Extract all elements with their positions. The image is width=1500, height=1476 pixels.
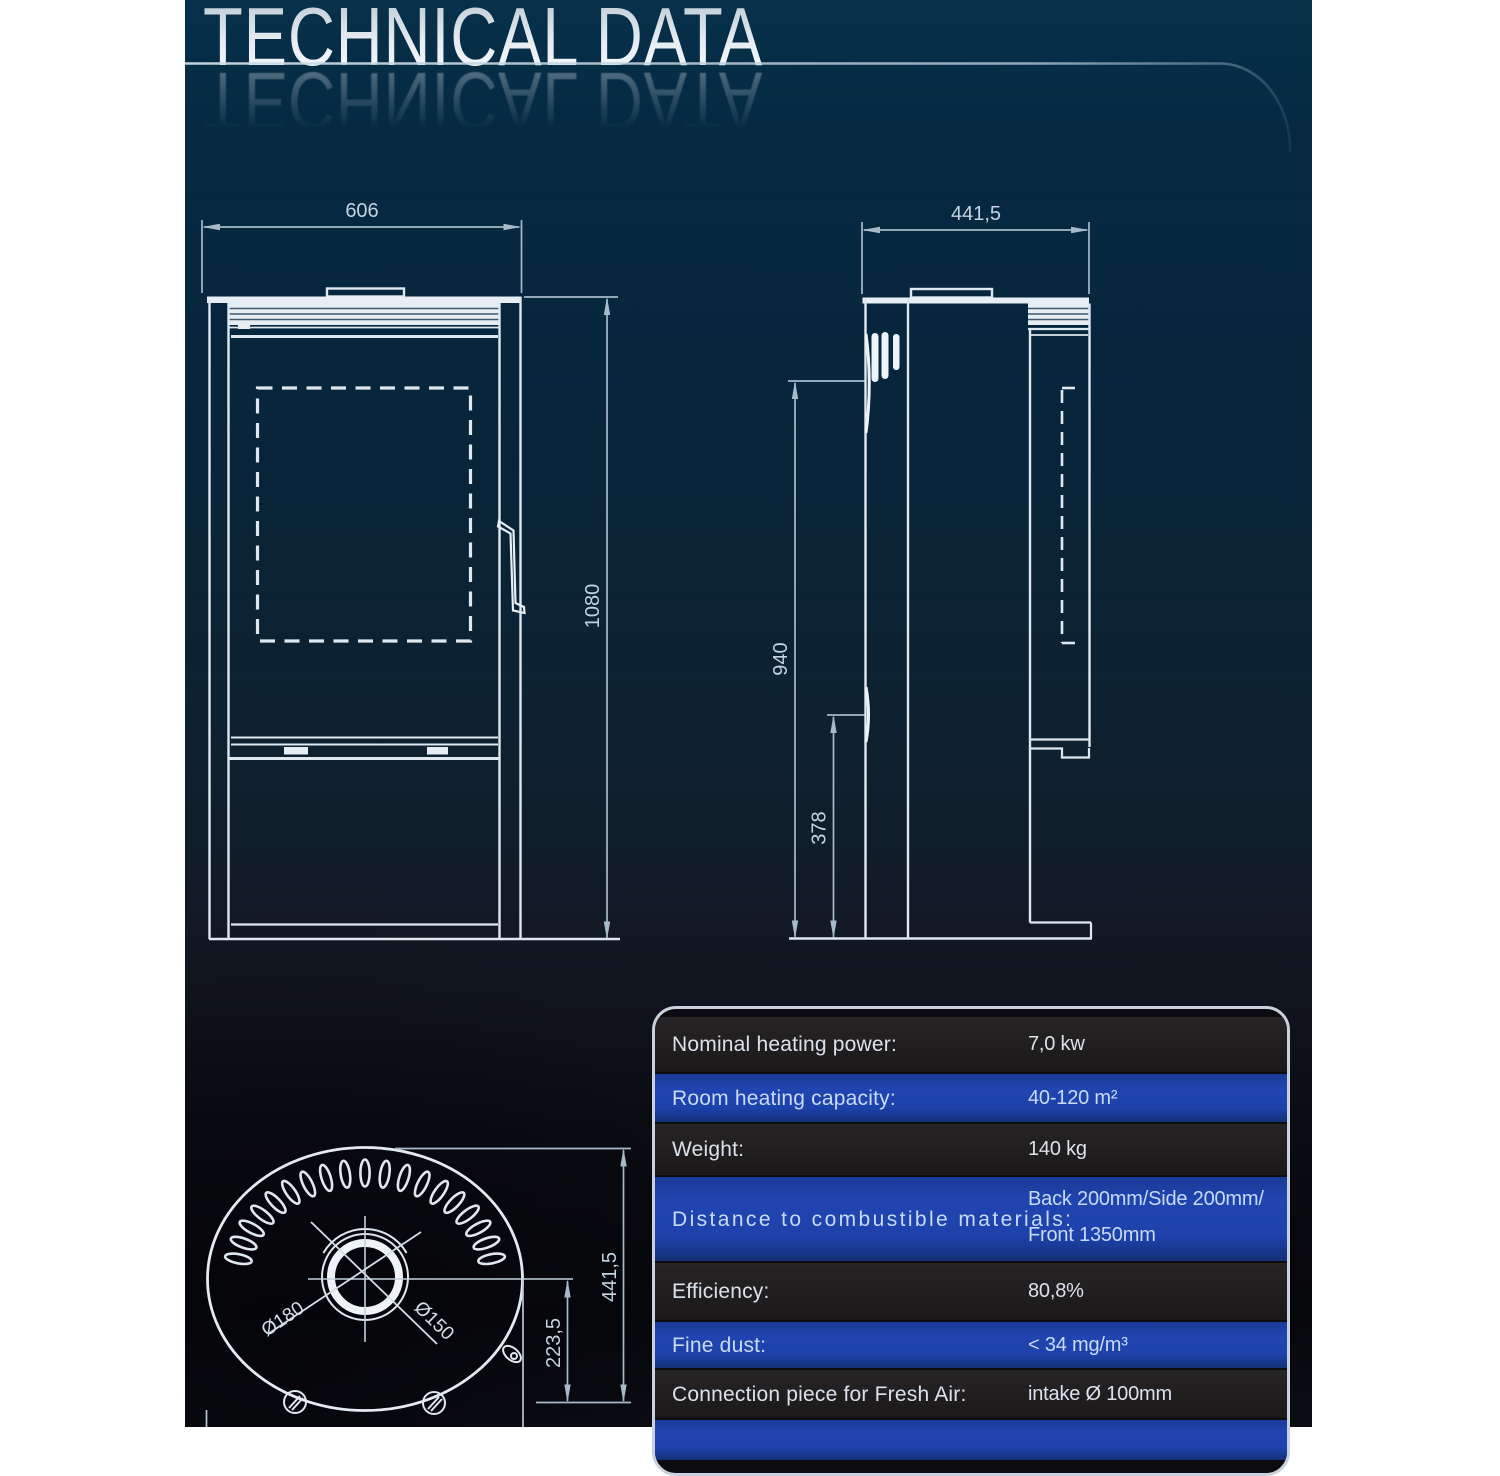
svg-text:378: 378 xyxy=(809,811,831,844)
svg-text:940: 940 xyxy=(770,642,792,675)
svg-text:1080: 1080 xyxy=(582,584,604,629)
svg-text:606: 606 xyxy=(345,200,378,222)
svg-text:Ø150: Ø150 xyxy=(410,1297,458,1344)
svg-text:441,5: 441,5 xyxy=(951,203,1001,225)
svg-text:441,5: 441,5 xyxy=(599,1252,621,1302)
svg-text:Ø180: Ø180 xyxy=(258,1298,308,1341)
svg-text:223,5: 223,5 xyxy=(543,1318,565,1368)
